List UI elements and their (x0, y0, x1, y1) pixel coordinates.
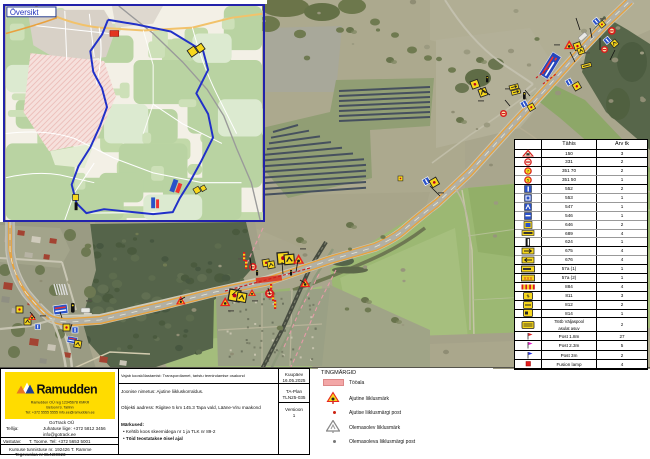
svg-text:Tel: +372 5555 5555 info.ee@r: Tel: +372 5555 5555 info.ee@ramudden.ee (25, 411, 94, 415)
svg-text:XXX: XXX (523, 276, 532, 281)
svg-text:Ramudden OÜ reg 12345678 KMKR: Ramudden OÜ reg 12345678 KMKR (31, 401, 90, 405)
svg-text:Ramudden: Ramudden (37, 383, 98, 397)
svg-text:Betooni 9, Tallinn: Betooni 9, Tallinn (46, 406, 73, 410)
svg-text:Översikt: Översikt (10, 8, 40, 17)
